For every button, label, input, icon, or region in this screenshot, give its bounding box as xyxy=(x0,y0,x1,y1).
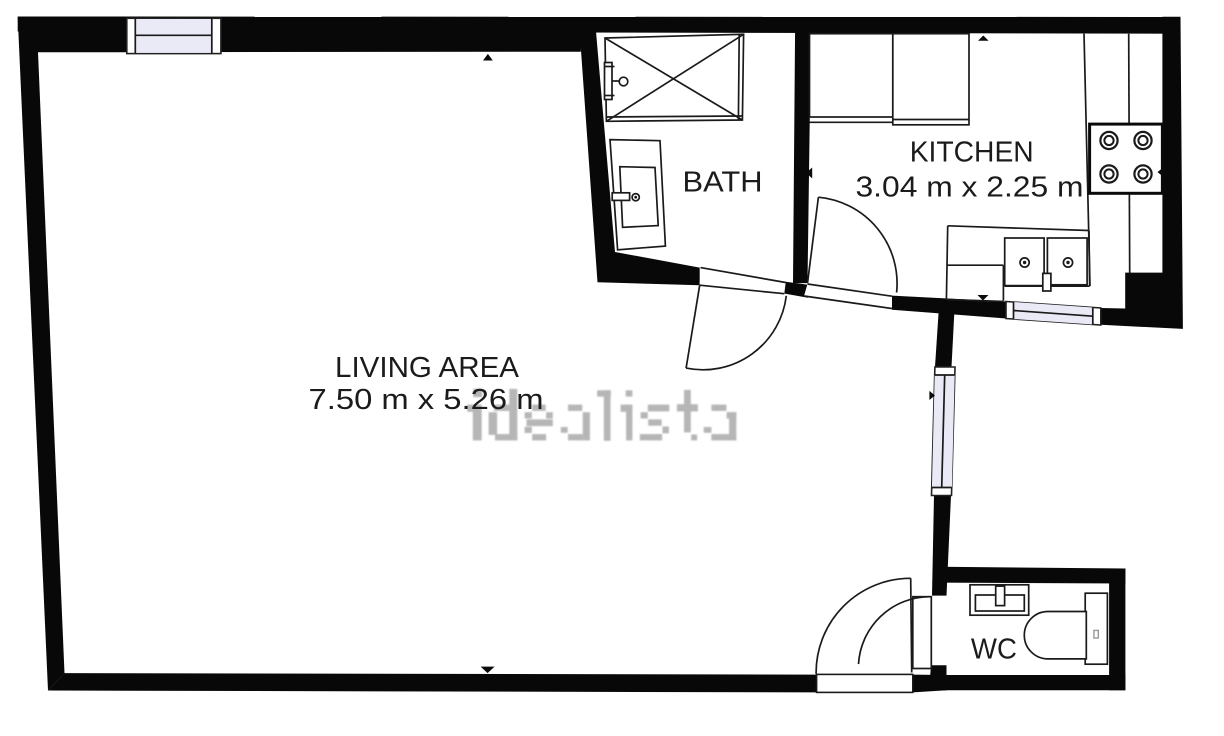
svg-text:LIVING AREA: LIVING AREA xyxy=(335,352,519,384)
svg-text:WC: WC xyxy=(971,634,1017,666)
svg-text:7.50 m x 5.26 m: 7.50 m x 5.26 m xyxy=(309,384,544,416)
svg-text:3.04 m x 2.25 m: 3.04 m x 2.25 m xyxy=(856,172,1084,204)
svg-text:KITCHEN: KITCHEN xyxy=(910,137,1034,169)
svg-text:BATH: BATH xyxy=(683,167,763,199)
